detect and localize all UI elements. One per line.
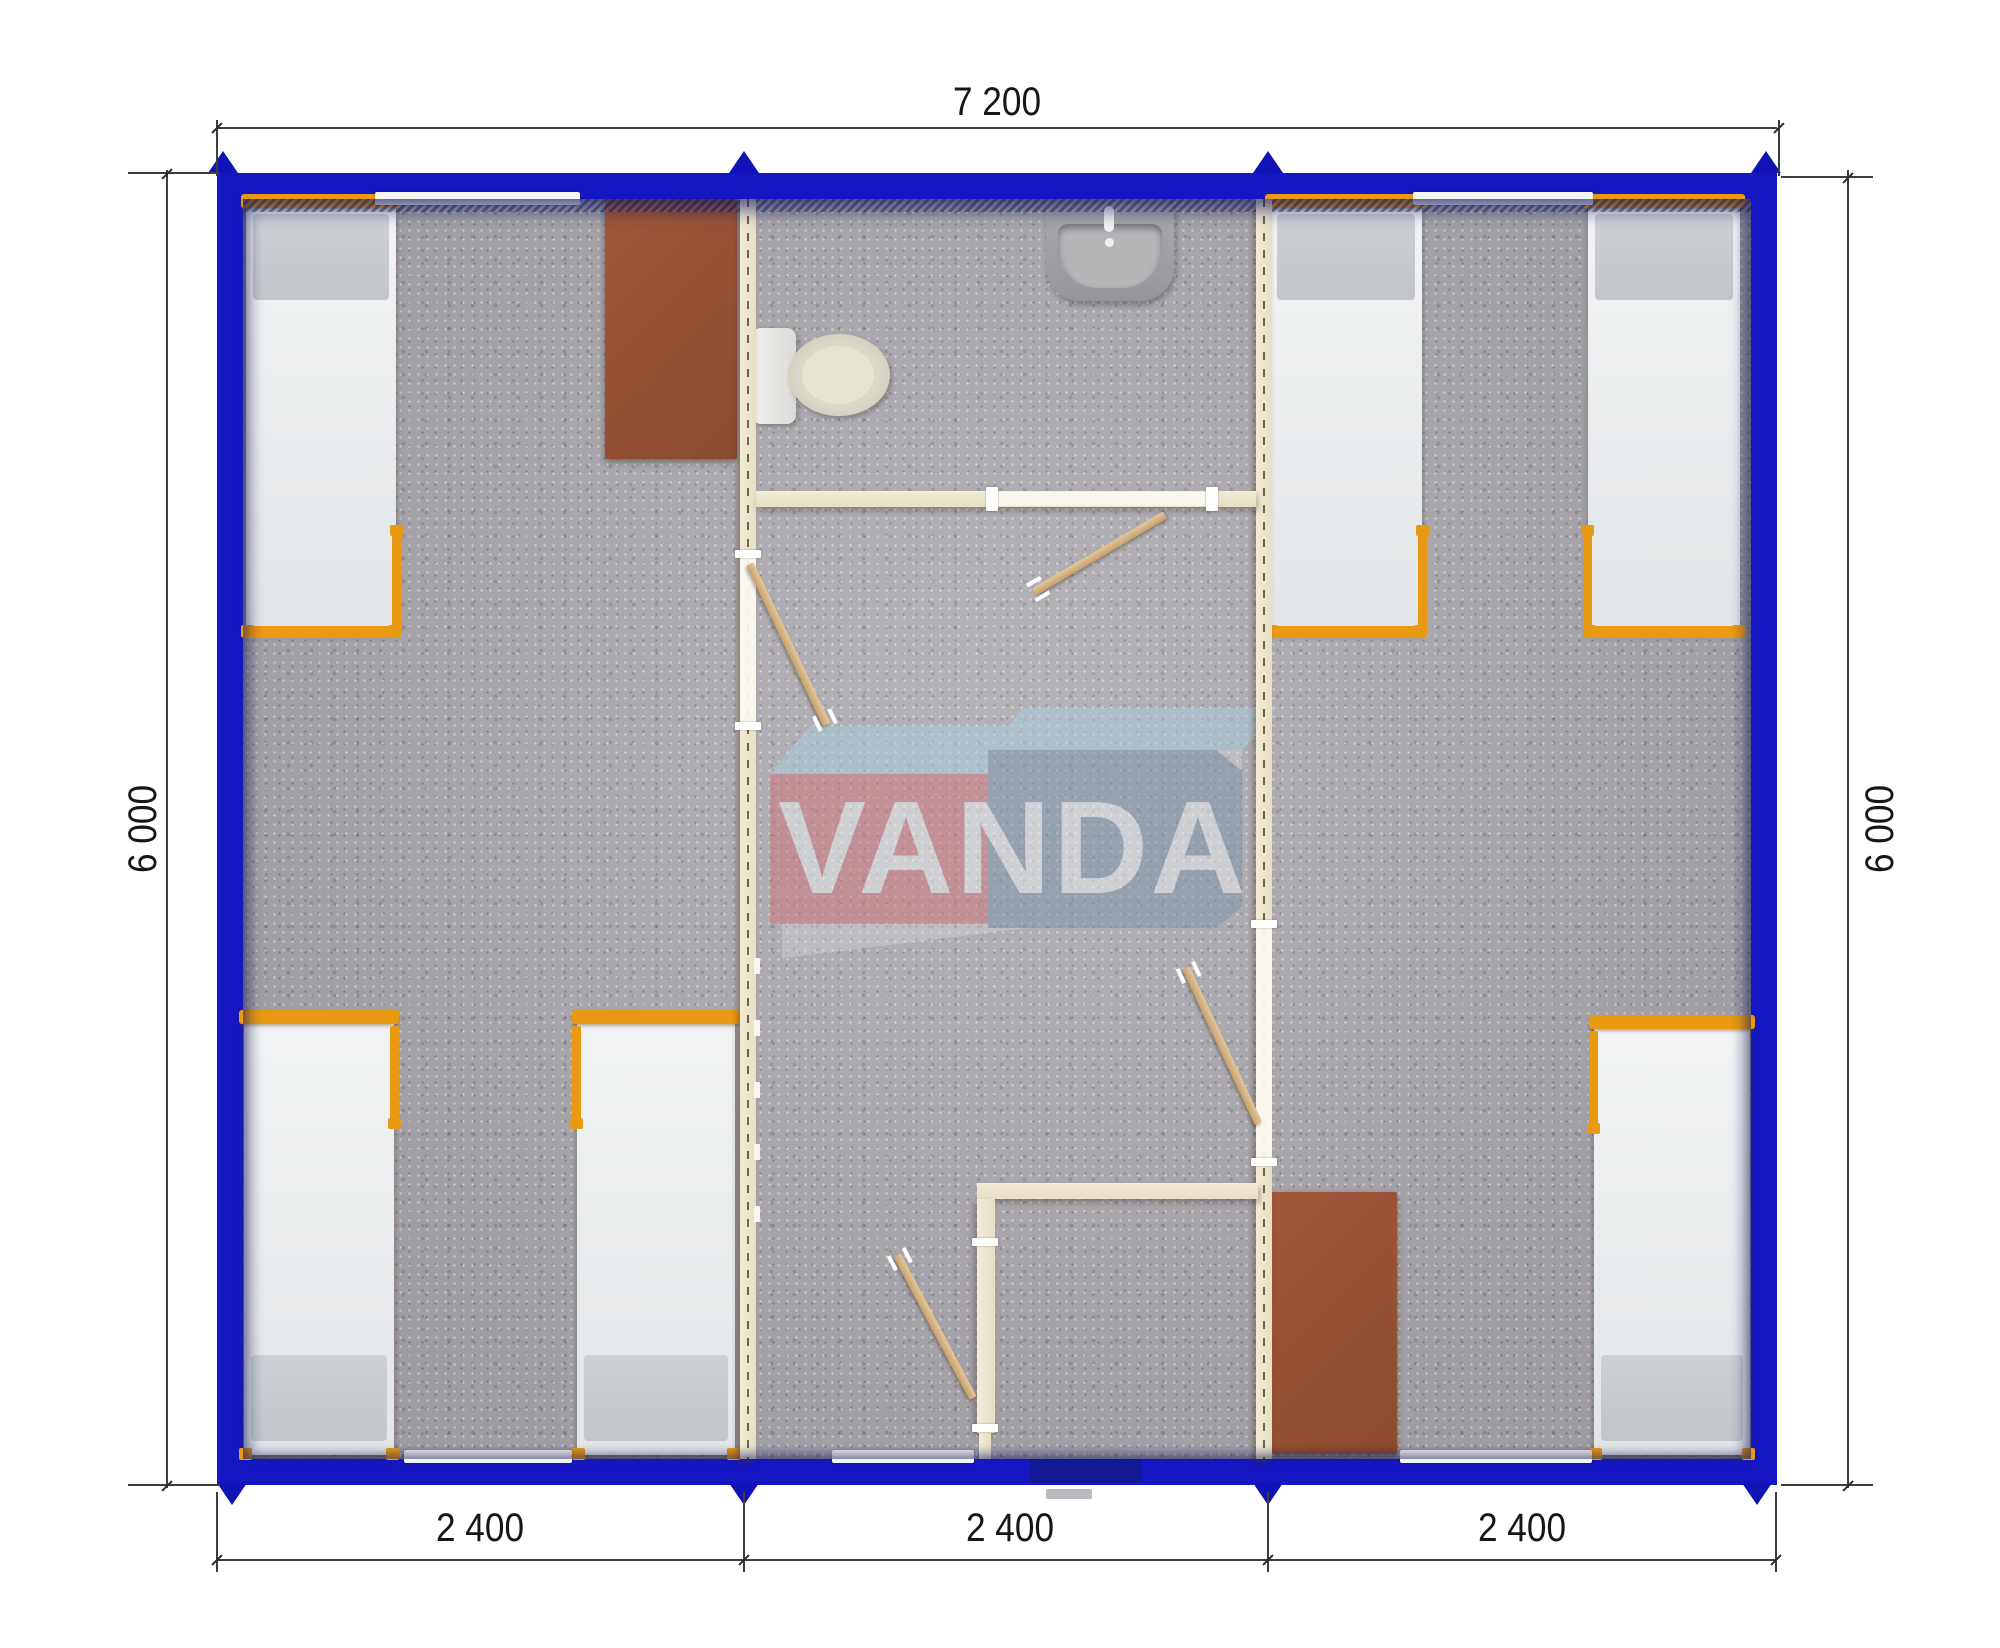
- partition-wall-right: [1256, 199, 1272, 1459]
- module-joint-arrow: [208, 151, 238, 173]
- module-joint-arrow: [729, 151, 759, 173]
- wall-connector: [754, 1206, 760, 1222]
- wall-connector: [754, 1144, 760, 1160]
- bed-foot: [1416, 525, 1429, 536]
- bed-frame-rail: [1583, 532, 1592, 628]
- door-jamb: [735, 550, 761, 558]
- bed-frame-bar: [572, 1010, 740, 1024]
- bed-frame-rail: [392, 532, 401, 628]
- dimension-label-module-2: 2 400: [922, 1506, 1098, 1550]
- bed-foot: [388, 625, 401, 637]
- entry-door: [1030, 1459, 1142, 1483]
- vestibule-wall-stub: [979, 1433, 991, 1459]
- bed-foot: [570, 1118, 583, 1129]
- dimension-label-left-height: 6 000: [121, 741, 165, 917]
- bed: [244, 1014, 394, 1455]
- bed-foot: [1732, 625, 1745, 637]
- door-jamb: [972, 1424, 998, 1432]
- bed-frame-bar: [1265, 626, 1427, 638]
- toilet-seat: [802, 346, 874, 404]
- bed-foot: [1587, 1123, 1600, 1134]
- floor-plan: VANDA: [0, 0, 2000, 1648]
- window-bottom-left-room: [404, 1450, 572, 1463]
- door-jamb: [735, 722, 761, 730]
- bed-frame-bar: [1589, 1015, 1755, 1029]
- bed: [577, 1014, 735, 1455]
- dimension-line-top: [217, 127, 1777, 129]
- vestibule-wall-top: [977, 1183, 1258, 1199]
- bed: [1270, 198, 1422, 632]
- dimension-label-right-height: 6 000: [1858, 741, 1902, 917]
- bed-foot: [1414, 625, 1427, 637]
- pillow: [1595, 214, 1733, 300]
- door-jamb: [986, 487, 998, 511]
- bathroom-door-opening: [993, 492, 1213, 506]
- bed-frame-rail: [1418, 532, 1427, 628]
- bed-frame-bar: [1583, 626, 1745, 638]
- desk: [1271, 1192, 1397, 1454]
- extension-line: [1781, 1484, 1873, 1486]
- dimension-line-bottom: [217, 1559, 1777, 1561]
- pillow: [584, 1355, 728, 1441]
- bed-foot: [239, 1448, 252, 1460]
- faucet-icon: [1104, 206, 1114, 232]
- dimension-line-right: [1847, 170, 1849, 1488]
- bed-foot: [1583, 625, 1596, 637]
- dimension-label-module-3: 2 400: [1434, 1506, 1610, 1550]
- wall-connector: [754, 958, 760, 974]
- bed: [1588, 198, 1740, 632]
- module-joint-arrow: [1742, 1483, 1772, 1505]
- entry-step: [1046, 1489, 1092, 1499]
- bed-foot: [1742, 1448, 1755, 1460]
- bed-frame-bar: [241, 626, 401, 638]
- bed: [1594, 1019, 1750, 1455]
- bed-frame-rail: [390, 1026, 399, 1122]
- extension-line: [128, 172, 220, 174]
- door-jamb: [1251, 920, 1277, 928]
- bed-frame-rail: [1589, 1031, 1598, 1127]
- bed-foot: [727, 1448, 740, 1460]
- window-bottom-right-room: [1400, 1450, 1592, 1463]
- bed-frame-bar: [239, 1010, 399, 1024]
- dimension-label-total-width: 7 200: [909, 80, 1085, 124]
- wall-centerline: [1263, 199, 1265, 1459]
- bed-foot: [390, 525, 403, 536]
- dimension-line-left: [166, 170, 168, 1488]
- window-top-left-room: [375, 192, 580, 205]
- wall-centerline: [747, 199, 749, 1459]
- pillow: [1277, 214, 1415, 300]
- building-outline: [217, 173, 1777, 1485]
- bed-foot: [1581, 525, 1594, 536]
- sink-basin: [1058, 224, 1162, 288]
- wall-connector: [754, 1020, 760, 1036]
- partition-wall-left: [740, 199, 756, 1459]
- bed-foot: [386, 1448, 399, 1460]
- bed-frame-rail: [572, 1026, 581, 1122]
- module-joint-arrow: [1751, 151, 1781, 173]
- extension-line: [128, 1484, 220, 1486]
- pillow: [251, 1355, 387, 1441]
- door-jamb: [1206, 487, 1218, 511]
- vestibule-wall-side: [977, 1199, 995, 1433]
- door-jamb: [1251, 1158, 1277, 1166]
- window-top-right-room: [1413, 192, 1593, 205]
- door-opening-right-room: [1256, 928, 1272, 1160]
- bed-foot: [388, 1118, 401, 1129]
- bed: [246, 198, 396, 632]
- module-joint-arrow: [1253, 151, 1283, 173]
- window-bottom-hall: [832, 1450, 974, 1463]
- module-joint-arrow: [217, 1483, 247, 1505]
- extension-line: [1781, 176, 1873, 178]
- pillow: [253, 214, 389, 300]
- pillow: [1601, 1355, 1743, 1441]
- dimension-label-module-1: 2 400: [392, 1506, 568, 1550]
- bed-foot: [241, 625, 254, 637]
- wall-connector: [754, 1082, 760, 1098]
- desk: [605, 199, 737, 459]
- bed-foot: [572, 1448, 585, 1460]
- door-jamb: [972, 1238, 998, 1246]
- drain-icon: [1105, 238, 1114, 247]
